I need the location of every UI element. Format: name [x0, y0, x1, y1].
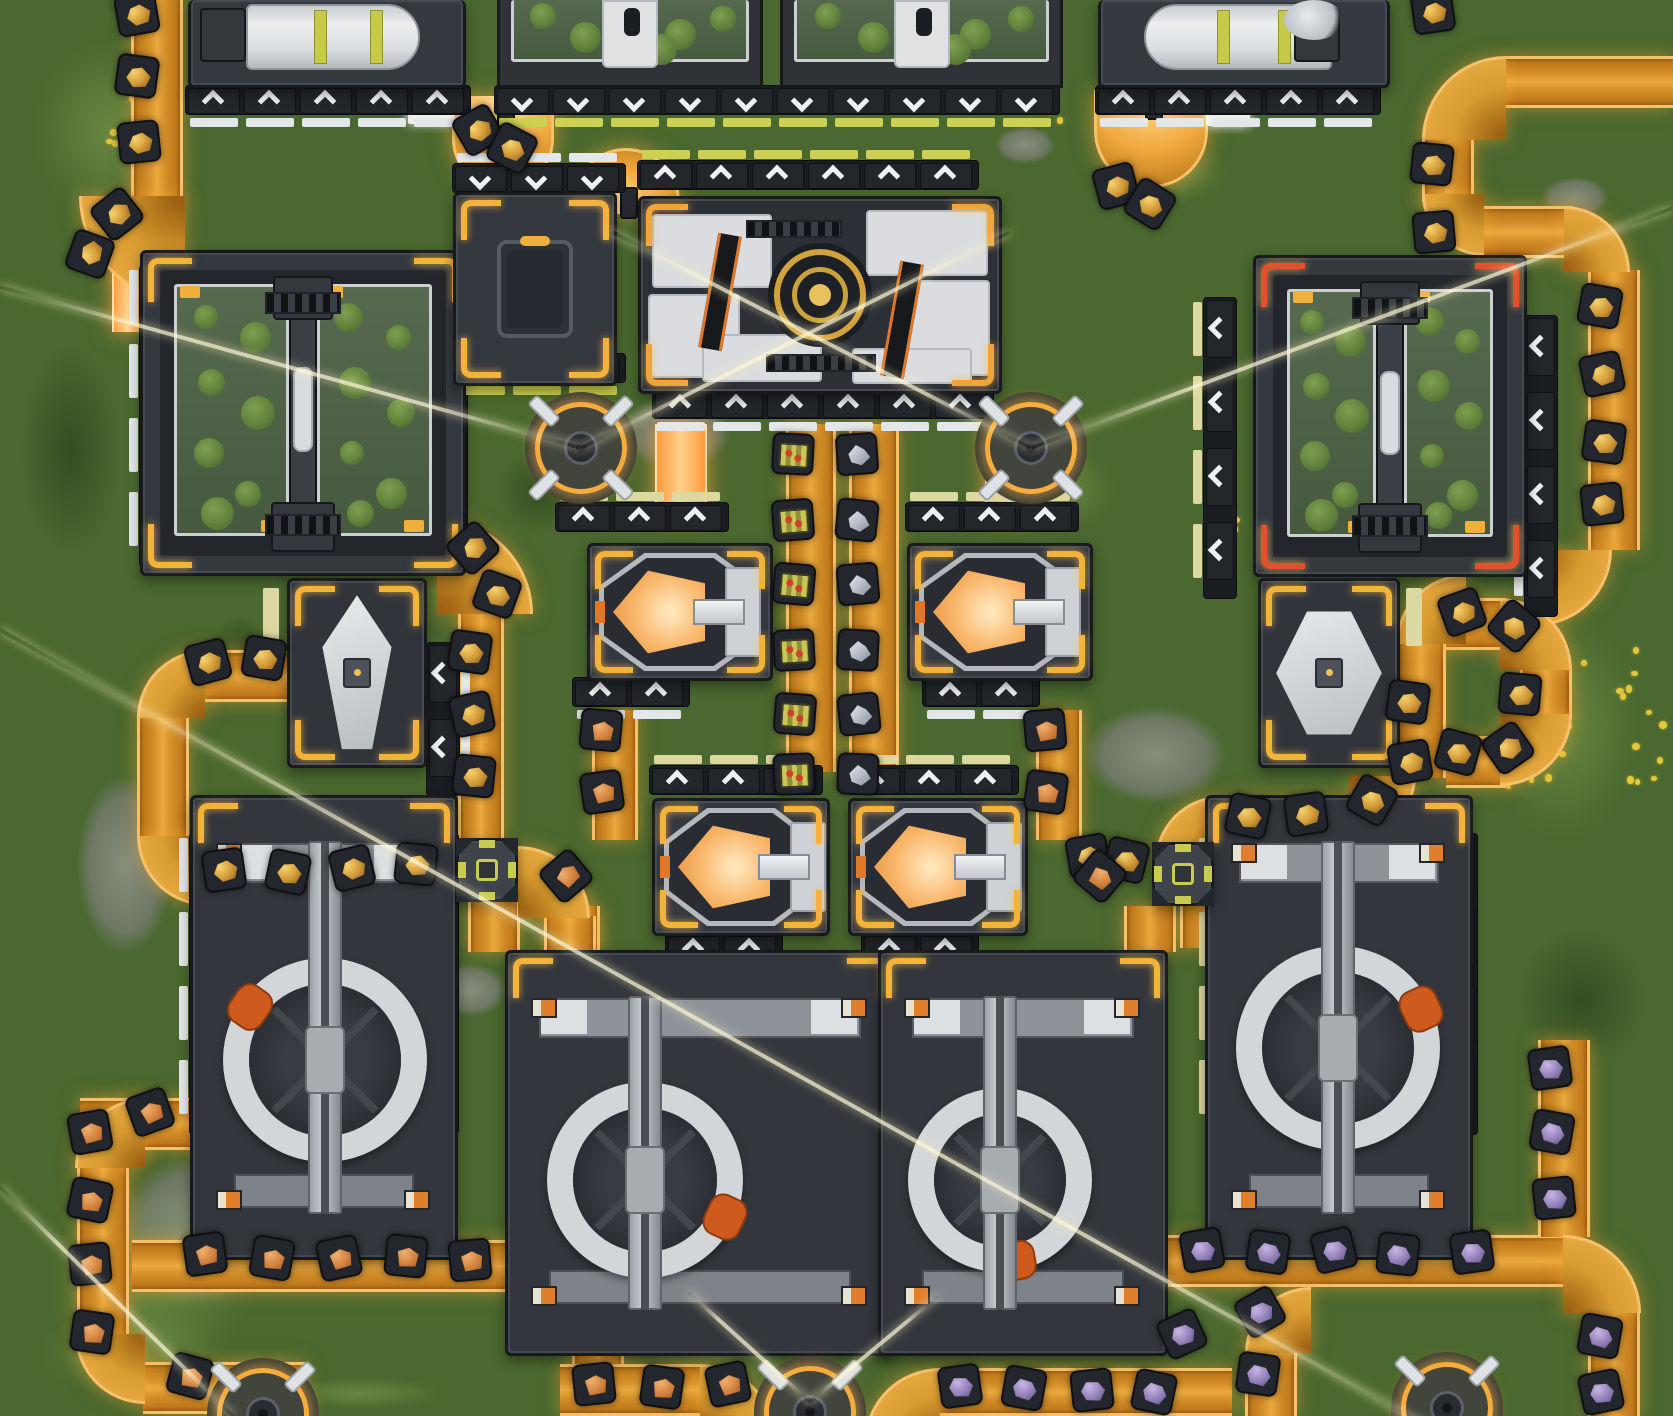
plant-icon	[376, 478, 407, 509]
port-indicator-bar	[891, 118, 939, 127]
plant-icon	[815, 3, 841, 29]
up-chevron-icon	[922, 507, 945, 530]
machine-port	[1527, 392, 1555, 450]
splitter-core	[1172, 863, 1194, 885]
copper-resource-icon	[579, 1371, 611, 1399]
tower-lens-icon	[805, 1407, 815, 1416]
corner-marker-stripe	[1233, 845, 1241, 861]
port-indicator-bar	[881, 422, 929, 431]
port-indicator-bar	[910, 492, 958, 501]
gold-resource-icon	[1291, 801, 1324, 830]
splitter-tab	[1175, 896, 1191, 904]
belt-item-purple	[1531, 1175, 1577, 1221]
up-chevron-icon	[1168, 90, 1191, 113]
piston	[954, 854, 1006, 880]
up-chevron-icon	[314, 90, 337, 113]
belt-item-tray	[771, 498, 816, 543]
up-chevron-icon	[934, 165, 957, 188]
gold-resource-icon	[1419, 220, 1451, 248]
conveyor-belt-segment[interactable]	[1124, 906, 1176, 952]
corner-bracket	[148, 524, 192, 568]
corner-bracket	[513, 958, 553, 998]
arm-hub	[305, 1026, 345, 1094]
left-chevron-icon	[1529, 483, 1552, 506]
gold-resource-icon	[1587, 491, 1619, 519]
belt-item-gold	[1497, 671, 1543, 717]
conveyor-belt-curve[interactable]	[1563, 1235, 1641, 1313]
machine-port	[670, 505, 722, 531]
flower-icon	[1057, 117, 1063, 123]
belt-item-purple	[1244, 1228, 1291, 1275]
plant-icon	[235, 481, 261, 507]
corner-bracket	[727, 635, 765, 673]
up-chevron-icon	[589, 682, 612, 705]
spine-light	[293, 367, 313, 452]
vent-grille	[1352, 515, 1428, 537]
conveyor-belt-curve[interactable]	[1422, 56, 1506, 140]
corner-bracket	[198, 803, 238, 843]
gold-resource-icon	[1418, 0, 1451, 28]
gold-resource-icon	[456, 700, 491, 731]
purple-resource-icon	[1536, 1119, 1570, 1149]
belt-item-gold	[1579, 481, 1625, 527]
port-indicator-bar	[835, 118, 883, 127]
left-chevron-icon	[1529, 335, 1552, 358]
up-chevron-icon	[426, 90, 449, 113]
corner-marker	[1231, 843, 1257, 863]
gold-resource-icon	[192, 647, 227, 679]
vent-grille	[746, 220, 842, 238]
corner-marker	[904, 998, 930, 1018]
up-chevron-icon	[893, 394, 916, 417]
machine-port	[1020, 505, 1072, 531]
corner-marker	[1419, 1190, 1445, 1210]
splitter-tab	[458, 862, 466, 878]
plant-icon	[1425, 502, 1452, 529]
greenhouse-glass-panel	[174, 284, 289, 536]
seed-dispenser	[894, 0, 950, 68]
plant-icon	[1335, 326, 1366, 357]
gold-resource-icon	[336, 853, 371, 885]
tray-resource-icon	[778, 508, 810, 535]
gold-resource-icon	[454, 639, 487, 668]
machine-port	[1527, 540, 1555, 598]
gold-resource-icon	[248, 645, 282, 675]
conveyor-belt-segment[interactable]	[544, 916, 596, 952]
purple-resource-icon	[1585, 1378, 1620, 1409]
belt-item-gold	[393, 841, 439, 887]
down-chevron-icon	[1015, 90, 1038, 113]
flower-icon	[1627, 776, 1633, 783]
belt-item-gold	[200, 846, 247, 893]
conveyor-belt-curve[interactable]	[1564, 206, 1630, 272]
arm-hub	[1318, 1014, 1358, 1082]
corner-bracket	[660, 890, 698, 928]
plant-icon	[1300, 441, 1330, 471]
machine-port	[609, 88, 661, 114]
gold-resource-icon	[455, 529, 494, 568]
input-tab	[856, 856, 866, 878]
belt-item-purple	[1526, 1044, 1573, 1091]
copper-resource-icon	[1030, 779, 1063, 808]
down-chevron-icon	[959, 90, 982, 113]
port-indicator-bar	[1156, 118, 1204, 127]
plant-icon	[858, 22, 889, 53]
crystal-resource-icon	[843, 638, 874, 665]
up-chevron-icon	[1280, 90, 1303, 113]
machine-port	[945, 88, 997, 114]
corner-bracket	[982, 806, 1020, 844]
gold-resource-icon	[1588, 429, 1621, 458]
belt-item-copper	[1022, 707, 1068, 753]
plant-icon	[347, 500, 374, 527]
down-chevron-icon	[511, 90, 534, 113]
conveyor-belt-curve[interactable]	[864, 1368, 940, 1416]
port-indicator-bar	[1212, 118, 1260, 127]
corner-bracket	[1475, 263, 1519, 307]
left-chevron-icon	[1208, 539, 1231, 562]
crystal-resource-icon	[844, 763, 875, 789]
port-indicator-bar	[190, 118, 238, 127]
belt-item-gold	[1282, 790, 1329, 837]
belt-item-tray	[772, 628, 816, 672]
port-indicator-bar	[611, 118, 659, 127]
plant-icon	[1455, 402, 1483, 430]
copper-resource-icon	[586, 718, 618, 746]
machine-port	[455, 166, 507, 192]
corner-bracket	[1266, 720, 1306, 760]
port-indicator-bar	[1193, 450, 1202, 504]
port-indicator-bar	[657, 422, 705, 431]
purple-resource-icon	[1242, 1294, 1280, 1331]
belt-item-copper	[314, 1233, 364, 1283]
belt-item-gold	[240, 634, 289, 683]
tray-resource-icon	[779, 572, 811, 600]
belt-item-crystal	[836, 691, 882, 737]
corner-marker	[404, 1190, 430, 1210]
machine-port	[981, 680, 1033, 706]
plant-icon	[241, 396, 275, 430]
belt-item-gold	[263, 847, 313, 897]
corner-bracket	[379, 586, 419, 626]
belt-item-purple	[1528, 1108, 1577, 1157]
belt-item-purple	[1000, 1364, 1049, 1413]
up-chevron-icon	[822, 165, 845, 188]
port-indicator-bar	[927, 710, 975, 719]
purple-resource-icon	[1318, 1235, 1353, 1267]
purple-resource-icon	[945, 1373, 978, 1402]
belt-item-gold	[1409, 141, 1455, 187]
machine-port	[1154, 88, 1206, 114]
corner-bracket	[1352, 720, 1392, 760]
corner-bracket	[1475, 525, 1519, 569]
indicator-light	[1326, 669, 1333, 676]
tank-stripe	[314, 10, 327, 64]
down-chevron-icon	[623, 90, 646, 113]
port-indicator-bar	[1324, 118, 1372, 127]
port-indicator-bar	[642, 150, 690, 159]
splitter-tab	[1175, 844, 1191, 852]
corner-marker-stripe	[1116, 1288, 1124, 1304]
gold-resource-icon	[99, 195, 138, 233]
port-indicator-bar	[654, 755, 702, 764]
port-indicator-bar	[1193, 376, 1202, 430]
machine-port	[767, 392, 819, 418]
down-chevron-icon	[679, 90, 702, 113]
copper-resource-icon	[256, 1245, 290, 1275]
plant-icon	[1447, 480, 1478, 511]
plant-icon	[1300, 310, 1324, 334]
corner-bracket	[915, 551, 953, 589]
belt-item-copper	[578, 768, 625, 815]
gold-resource-icon	[1131, 187, 1170, 224]
port-indicator-bar	[667, 118, 715, 127]
machine-port	[696, 163, 748, 189]
port-indicator-bar	[723, 118, 771, 127]
machine-port	[356, 88, 408, 114]
down-chevron-icon	[469, 168, 492, 191]
port-indicator-bar	[129, 344, 138, 398]
copper-resource-icon	[173, 1362, 208, 1394]
flower-icon	[1631, 671, 1638, 676]
corner-marker-stripe	[843, 1288, 851, 1304]
crystal-resource-icon	[843, 572, 875, 600]
purple-resource-icon	[1457, 1239, 1490, 1268]
corner-marker-stripe	[1421, 1192, 1429, 1208]
purple-resource-icon	[1252, 1239, 1285, 1268]
gold-resource-icon	[401, 852, 433, 880]
purple-resource-icon	[1077, 1377, 1109, 1405]
corner-bracket	[414, 258, 458, 302]
corner-bracket	[660, 806, 698, 844]
gold-resource-icon	[1441, 738, 1476, 770]
corner-marker	[216, 1190, 242, 1210]
debris-pile	[1284, 0, 1344, 40]
belt-item-gold	[1576, 282, 1625, 331]
corner-bracket	[1261, 525, 1305, 569]
dispenser-slot	[916, 8, 932, 36]
plant-icon	[1303, 373, 1330, 400]
tower-lens-icon	[1026, 443, 1036, 453]
machine-port	[864, 163, 916, 189]
port-indicator-bar	[179, 838, 188, 892]
seed-dispenser	[602, 0, 658, 68]
piston	[1013, 599, 1065, 625]
container-hatch-inner	[507, 250, 563, 328]
belt-item-crystal	[836, 752, 879, 795]
belt-item-gold	[1577, 349, 1627, 399]
tower-lens-icon	[258, 1409, 268, 1416]
corner-marker-stripe	[843, 1000, 851, 1016]
flower-icon	[1620, 693, 1626, 699]
corner-marker	[1114, 1286, 1140, 1306]
corner-bracket	[727, 551, 765, 589]
down-chevron-icon	[903, 90, 926, 113]
gold-resource-icon	[271, 858, 306, 889]
belt-item-gold	[1411, 209, 1457, 255]
gold-resource-icon	[1394, 748, 1428, 778]
gold-resource-icon	[1353, 783, 1391, 820]
plant-icon	[1418, 370, 1450, 402]
machine-port	[1001, 88, 1053, 114]
plant-icon	[710, 6, 736, 32]
piston	[693, 599, 745, 625]
corner-bracket	[646, 344, 688, 386]
port-indicator-bar	[129, 418, 138, 472]
machine-port	[889, 88, 941, 114]
up-chevron-icon	[725, 394, 748, 417]
up-chevron-icon	[645, 682, 668, 705]
machine-port	[1206, 374, 1234, 432]
corner-marker	[841, 1286, 867, 1306]
up-chevron-icon	[974, 770, 997, 793]
machine-port	[777, 88, 829, 114]
gold-resource-icon	[1586, 360, 1621, 391]
machine-port	[640, 163, 692, 189]
splitter-tab	[479, 840, 495, 848]
copper-resource-icon	[587, 779, 620, 808]
conveyor-belt-segment[interactable]	[468, 900, 520, 952]
corner-bracket	[1047, 551, 1085, 589]
corner-bracket	[784, 806, 822, 844]
machine-port	[1206, 522, 1234, 580]
corner-marker	[841, 998, 867, 1018]
belt-item-gold	[116, 119, 162, 165]
gold-resource-icon	[1392, 689, 1425, 718]
tray-resource-icon	[780, 702, 812, 729]
corner-bracket	[1047, 635, 1085, 673]
port-indicator-bar	[1100, 118, 1148, 127]
plant-icon	[570, 22, 601, 53]
machine-port	[960, 768, 1012, 794]
conveyor-belt-segment[interactable]	[1484, 206, 1572, 258]
gold-resource-icon	[75, 235, 109, 272]
corner-marker-stripe	[1421, 845, 1429, 861]
port-indicator-bar	[866, 150, 914, 159]
conveyor-belt-segment[interactable]	[137, 716, 189, 836]
copper-resource-icon	[548, 857, 587, 895]
belt-item-purple	[1448, 1228, 1495, 1275]
belt-item-copper	[638, 1363, 685, 1410]
copper-resource-icon	[1080, 859, 1119, 897]
greenhouse-glass-panel	[1287, 289, 1376, 537]
crystal-resource-icon	[842, 508, 874, 536]
arm-hub	[980, 1146, 1020, 1214]
machine-port	[1322, 88, 1374, 114]
machine-port	[833, 88, 885, 114]
corner-marker-stripe	[906, 1288, 914, 1304]
up-chevron-icon	[202, 90, 225, 113]
up-chevron-icon	[1112, 90, 1135, 113]
gold-resource-icon	[121, 0, 155, 30]
hatch-handle	[520, 236, 550, 246]
port-indicator-bar	[129, 492, 138, 546]
machine-port	[567, 166, 619, 192]
plant-icon	[1332, 482, 1358, 508]
up-chevron-icon	[878, 165, 901, 188]
vent-grille	[1352, 297, 1428, 319]
machine-port	[1527, 318, 1555, 376]
corner-bracket	[1120, 958, 1160, 998]
plant-icon	[1455, 329, 1480, 354]
tray-resource-icon	[780, 762, 811, 788]
belt-item-copper	[66, 1108, 115, 1157]
belt-item-copper	[703, 1359, 753, 1409]
plant-icon	[240, 322, 271, 353]
port-indicator-bar	[555, 118, 603, 127]
game-viewport	[0, 0, 1673, 1416]
copper-resource-icon	[73, 1186, 108, 1217]
corner-bracket	[784, 890, 822, 928]
port-indicator-bar	[246, 118, 294, 127]
belt-item-purple	[1234, 1350, 1281, 1397]
flower-icon	[1632, 743, 1639, 750]
corner-bracket	[379, 720, 419, 760]
corner-bracket	[856, 806, 894, 844]
corner-bracket	[1266, 586, 1306, 626]
purple-resource-icon	[1584, 1323, 1618, 1353]
belt-item-copper	[383, 1233, 429, 1279]
machine-port	[665, 88, 717, 114]
plant-icon	[530, 3, 556, 29]
corner-bracket	[982, 890, 1020, 928]
tank-stripe	[370, 10, 383, 64]
machine-port	[908, 505, 960, 531]
gold-resource-icon	[1494, 609, 1533, 647]
copper-resource-icon	[455, 1248, 487, 1276]
plant-icon	[1335, 399, 1369, 433]
up-chevron-icon	[918, 770, 941, 793]
machine-port	[1527, 466, 1555, 524]
port-indicator-bar	[713, 422, 761, 431]
corner-bracket	[569, 200, 609, 240]
belt-item-crystal	[834, 497, 880, 543]
input-tab	[595, 601, 605, 623]
port-indicator-bar	[710, 755, 758, 764]
copper-resource-icon	[1030, 718, 1062, 746]
corner-bracket	[410, 803, 450, 843]
arm-hub	[625, 1146, 665, 1214]
belt-item-crystal	[836, 628, 880, 672]
tower-lens-icon	[1442, 1403, 1452, 1413]
belt-item-copper	[65, 1175, 115, 1225]
input-tab	[915, 601, 925, 623]
flower-icon	[1626, 685, 1631, 693]
splitter-tab	[479, 892, 495, 900]
copper-resource-icon	[76, 1319, 109, 1348]
copper-resource-icon	[391, 1244, 423, 1272]
conveyor-belt-segment[interactable]	[1506, 56, 1673, 108]
up-chevron-icon	[684, 507, 707, 530]
machine-port	[925, 680, 977, 706]
plant-icon	[386, 325, 411, 350]
machine-port	[553, 88, 605, 114]
machine-port	[497, 88, 549, 114]
port-indicator-bar	[754, 150, 802, 159]
port-indicator-bar	[179, 986, 188, 1040]
machine-port	[904, 768, 956, 794]
corner-bracket	[1425, 803, 1465, 843]
belt-item-gold	[447, 689, 497, 739]
gold-resource-icon	[124, 129, 156, 157]
machine-port	[752, 163, 804, 189]
tank-coupler	[200, 8, 246, 62]
down-chevron-icon	[567, 90, 590, 113]
down-chevron-icon	[791, 90, 814, 113]
plant-icon	[194, 438, 224, 468]
machine-port	[558, 505, 610, 531]
belt-item-gold	[451, 753, 497, 799]
